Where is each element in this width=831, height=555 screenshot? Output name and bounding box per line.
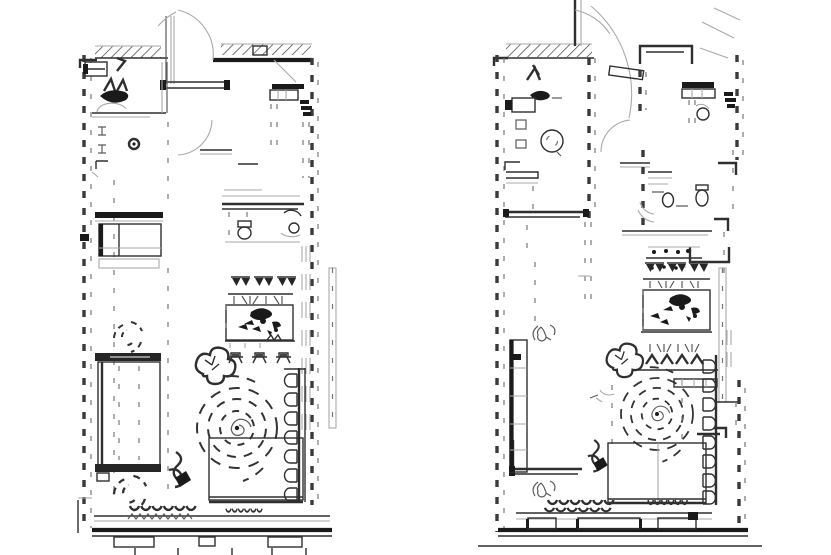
- sofa-cushion: [703, 360, 716, 373]
- toilet: [696, 190, 708, 206]
- radiators: [526, 512, 698, 529]
- sofa: [674, 355, 717, 505]
- plant-scribble: [196, 348, 236, 384]
- kitchen-sink: [697, 108, 709, 120]
- sofa-cushion: [285, 488, 298, 501]
- tv-sideboard: [608, 443, 706, 503]
- dining-set: [638, 263, 718, 370]
- dining-chair: [645, 263, 664, 272]
- window-scallops: [545, 508, 611, 512]
- shelf-marks: [300, 100, 312, 116]
- sofa-cushion: [285, 412, 298, 425]
- sofa-cushion: [285, 450, 298, 463]
- dining-chair: [231, 277, 250, 286]
- floor-plan-canvas: [0, 0, 831, 555]
- sofa-cushion: [703, 379, 716, 392]
- dining-chair: [689, 263, 708, 272]
- tv-sideboard: [209, 438, 303, 502]
- bathroom-fixtures: [505, 65, 563, 156]
- sofa-cushion: [285, 374, 298, 387]
- washing-machine: [541, 130, 563, 152]
- entry-door-swing: [575, 6, 644, 152]
- door-jamb: [98, 145, 106, 153]
- handwritten-mark: [533, 325, 555, 341]
- sofa-cushion: [285, 393, 298, 406]
- table-centerpiece-sketch: [244, 308, 281, 336]
- folding-chairs-row: [646, 355, 703, 364]
- second-bathroom: [638, 172, 708, 222]
- hatched-wall: [506, 44, 592, 57]
- window-mullions: [302, 246, 310, 430]
- sofa-cushion: [285, 469, 298, 482]
- dining-chair: [254, 277, 273, 286]
- dark-basin-sketch: [100, 90, 128, 103]
- dining-chair: [277, 277, 296, 286]
- handwritten-mark: [533, 481, 555, 497]
- towel-hook-sketch: [117, 58, 125, 71]
- sofa-cushion: [703, 455, 716, 468]
- service-shaft: [329, 268, 336, 428]
- wardrobe: [510, 340, 527, 472]
- toilet: [238, 227, 251, 239]
- shelf-marks: [724, 92, 736, 108]
- window-scallops: [548, 500, 614, 504]
- potted-plant: [114, 476, 146, 511]
- dining-stool: [228, 353, 243, 363]
- hall-cabinet: [80, 212, 163, 268]
- dark-basin-sketch: [530, 91, 550, 100]
- right-floor-plan: [478, 0, 762, 546]
- lamp-scribble: [169, 452, 191, 487]
- bedroom-dresser: [270, 60, 312, 178]
- hatched-wall: [95, 46, 161, 58]
- radiator: [528, 518, 556, 529]
- dining-stool: [276, 353, 291, 363]
- floor-plans-svg: [0, 0, 831, 555]
- window-scallops: [226, 509, 262, 512]
- plant-scribble: [607, 344, 643, 377]
- window-scallops: [130, 506, 196, 510]
- sofa-cushion: [703, 417, 716, 430]
- lamp-scribble: [588, 440, 608, 472]
- potted-plant: [114, 322, 142, 352]
- sofa-cushion: [703, 398, 716, 411]
- double-bed: [95, 353, 161, 481]
- wall-bracket: [690, 247, 729, 262]
- left-floor-plan: [78, 10, 336, 555]
- table-centerpiece-sketch: [663, 294, 700, 322]
- door-jamb: [98, 127, 106, 135]
- ensuite-fixtures: [229, 210, 301, 240]
- sofa-bench: [674, 379, 717, 387]
- right-plan-walls: [478, 0, 762, 546]
- kitchen-counter: [682, 82, 736, 128]
- round-basin: [289, 223, 299, 233]
- dining-stool: [252, 353, 267, 363]
- bidet: [663, 193, 674, 207]
- radiator: [578, 518, 640, 529]
- sofa-cushion: [703, 474, 716, 487]
- dining-set: [225, 277, 296, 363]
